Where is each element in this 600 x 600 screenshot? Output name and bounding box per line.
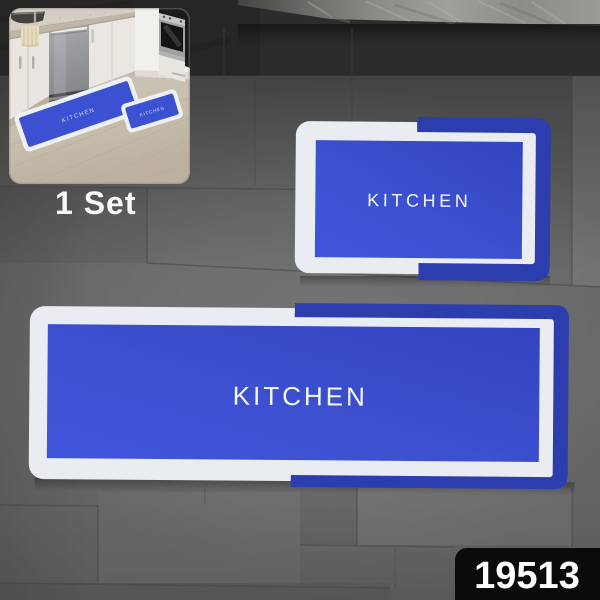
- svg-text:KITCHEN: KITCHEN: [367, 190, 471, 211]
- svg-text:KITCHEN: KITCHEN: [233, 381, 368, 412]
- svg-text:19513: 19513: [474, 555, 580, 597]
- svg-text:1 Set: 1 Set: [55, 185, 136, 221]
